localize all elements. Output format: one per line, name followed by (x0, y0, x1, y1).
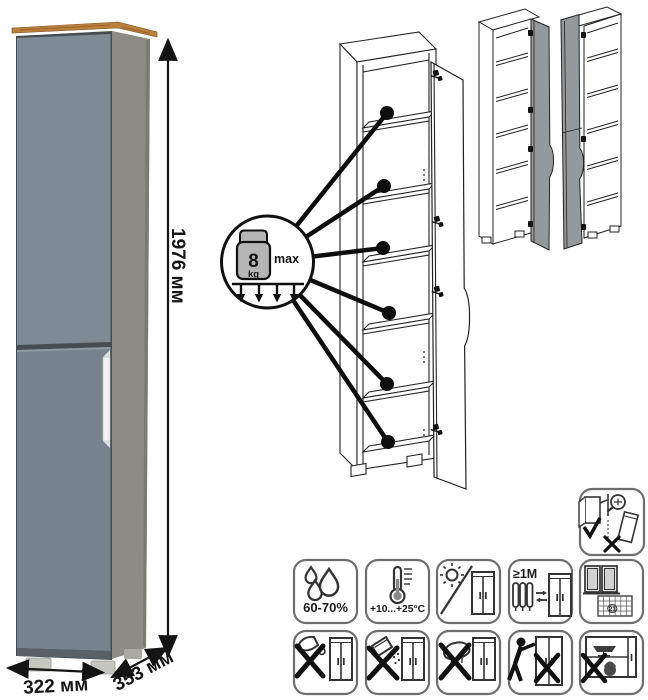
door-handle (103, 357, 110, 441)
product-render: 1976 мм 322 мм 353 мм (0, 0, 220, 700)
radiator-icon (513, 583, 533, 607)
cabinet-lower-door (17, 347, 111, 651)
height-dimension-label: 1976 мм (167, 228, 188, 304)
variant-door-left (561, 7, 621, 249)
calendar-icon: 21 (598, 596, 632, 616)
variant-door-right (479, 9, 554, 250)
foot-back (124, 649, 142, 659)
weight-unit: kg (248, 269, 259, 280)
no-overloading-icon (583, 637, 636, 681)
width-dimension-arrow (8, 668, 103, 673)
gray-door-left (561, 15, 584, 250)
sun-icon (447, 570, 458, 581)
temperature-label: +10...+25°C (370, 604, 426, 615)
carcass-side (340, 44, 357, 470)
shelf-load-diagram: 8 kg max (210, 0, 480, 520)
care-pictograms: 60-70% +10...+25°C (288, 455, 648, 700)
door-variants (470, 0, 648, 262)
width-dimension-label: 322 мм (23, 674, 89, 698)
distance-label: ≥1М (513, 567, 537, 581)
max-label: max (274, 252, 299, 266)
instruction-sheet: 1976 мм 322 мм 353 мм (0, 0, 648, 700)
humidity-label: 60-70% (303, 600, 348, 615)
calendar-day: 21 (609, 606, 617, 613)
cabinet-upper-door (17, 34, 111, 345)
